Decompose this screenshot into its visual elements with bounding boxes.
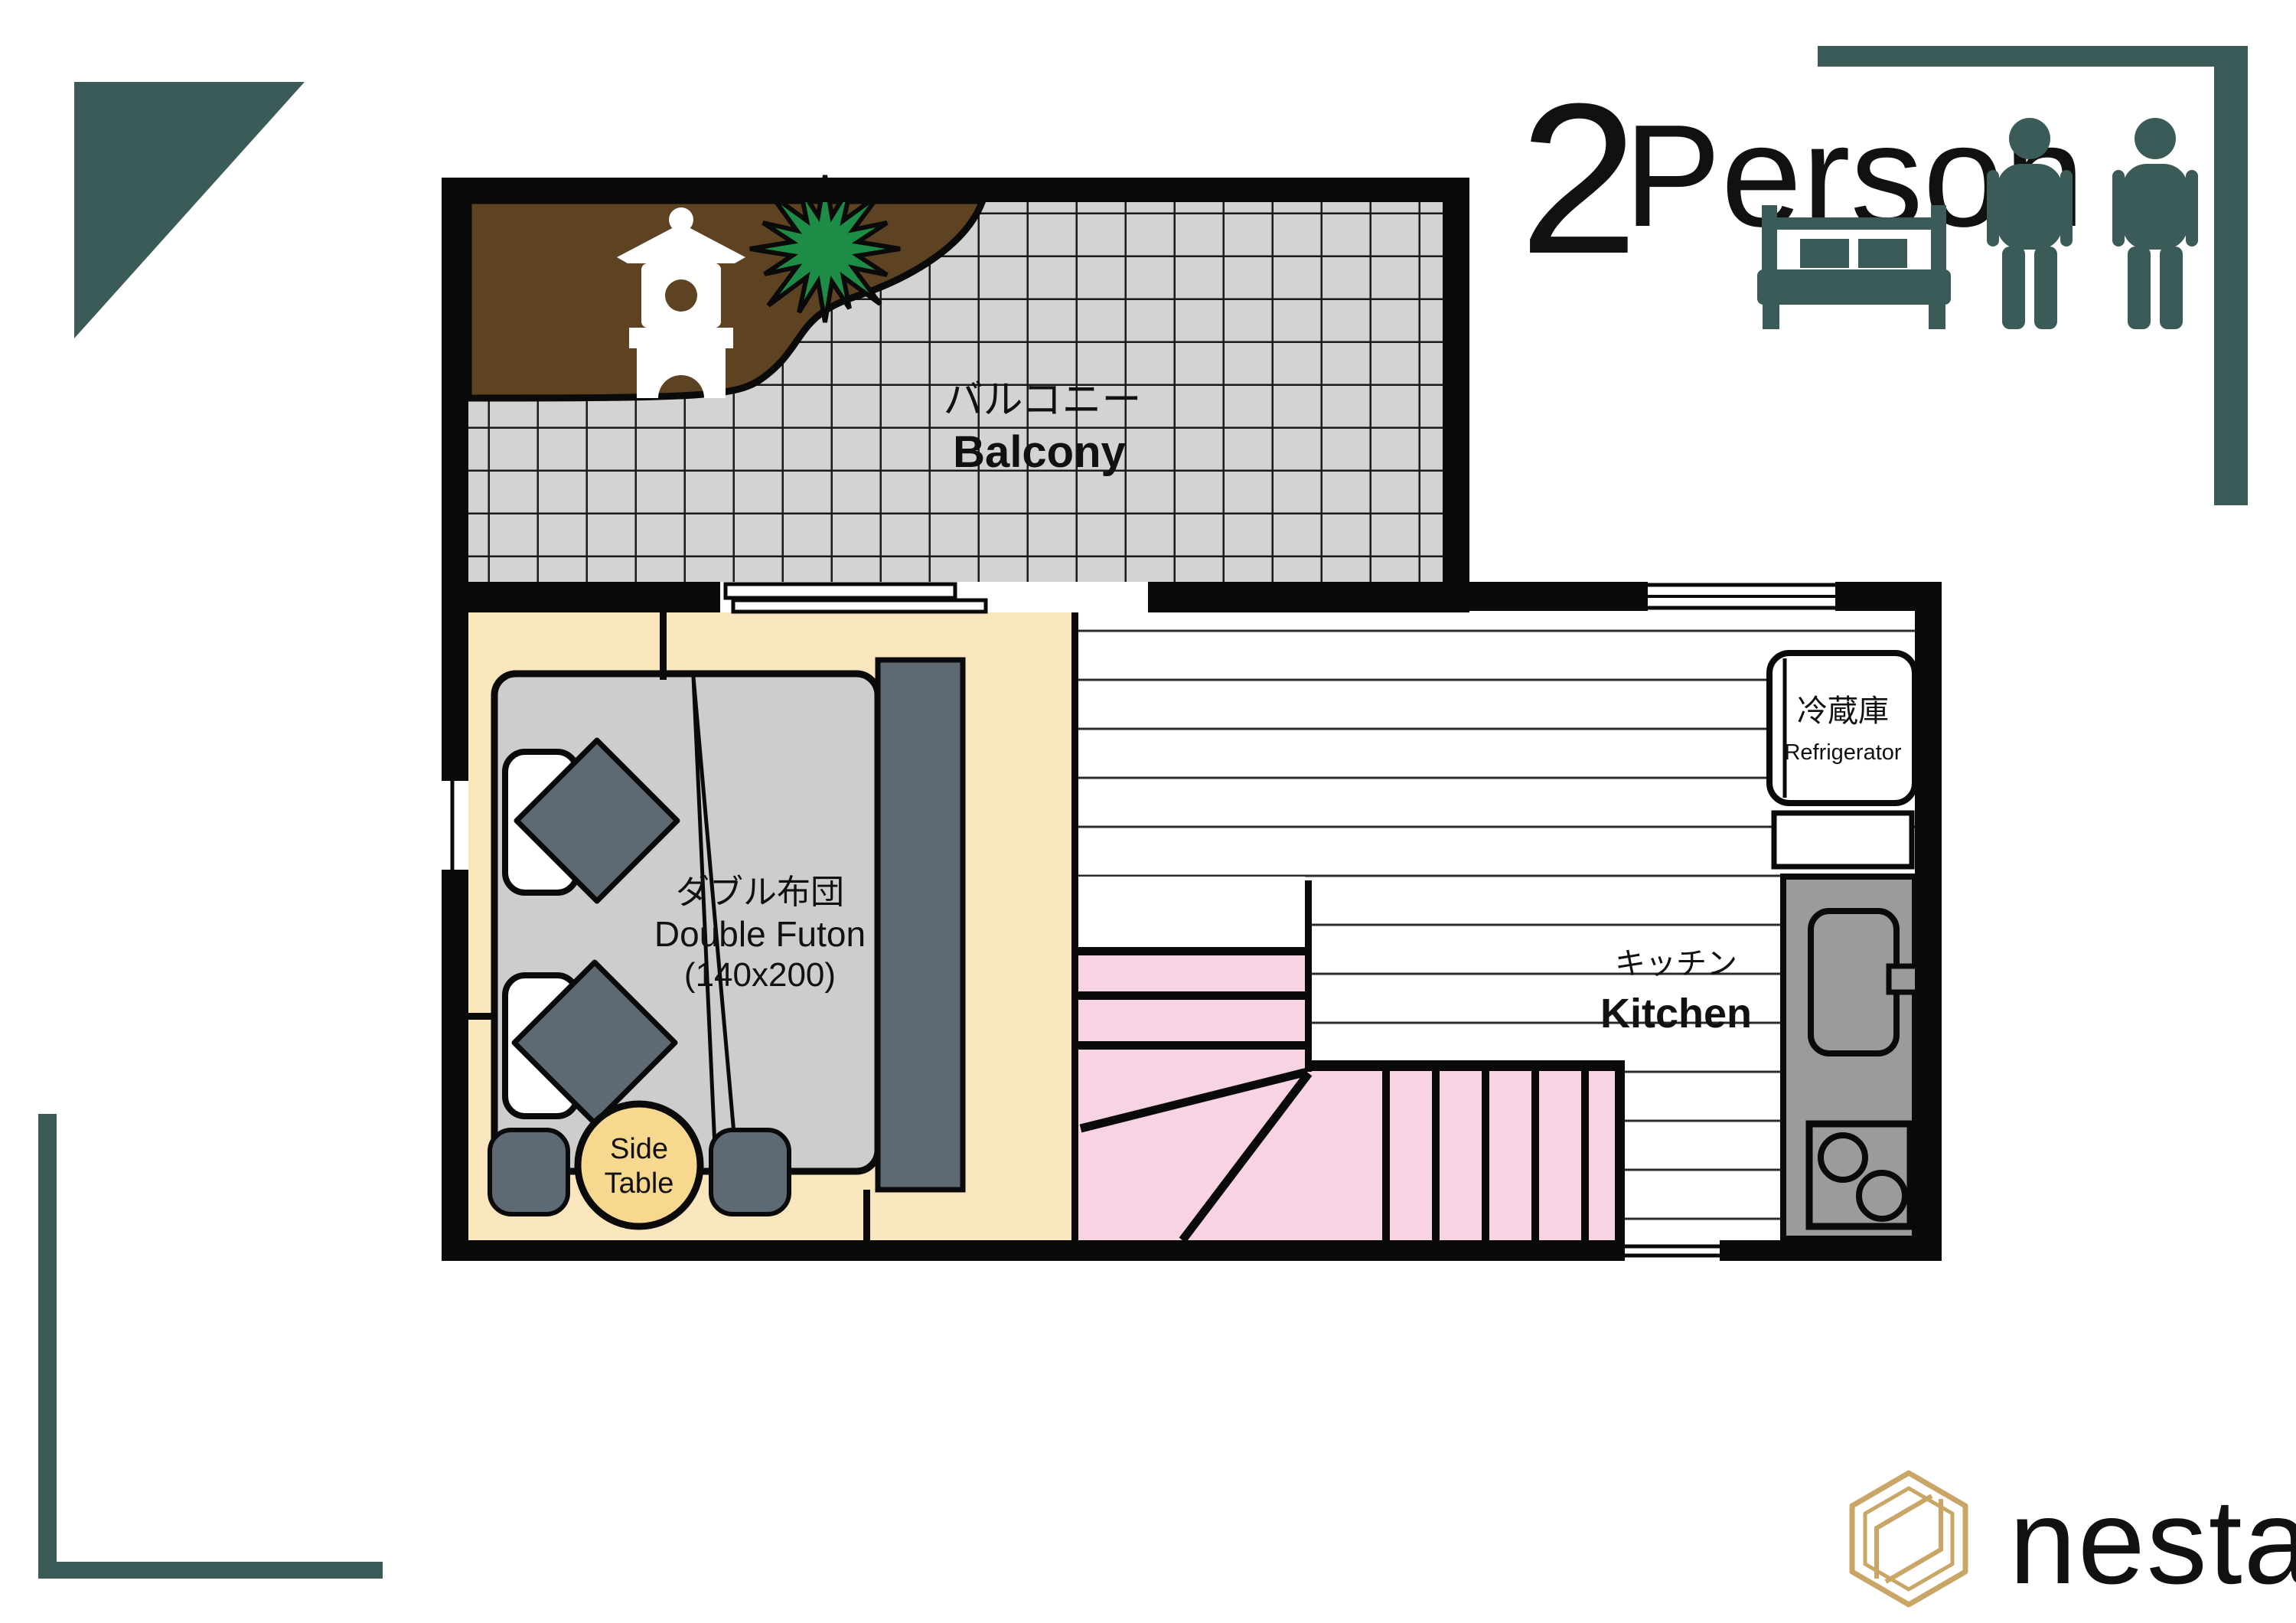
- corner-bracket-bottom-left: [38, 1114, 383, 1579]
- side-table-label-1: Side: [610, 1133, 668, 1165]
- corner-triangle: [74, 82, 305, 338]
- floor-cushion: [711, 1130, 789, 1214]
- kitchen-label-en: Kitchen: [1600, 991, 1752, 1037]
- sink: [1811, 911, 1896, 1053]
- window: [1648, 582, 1835, 611]
- bed-icon: [1757, 205, 1951, 329]
- refrigerator: [1769, 653, 1915, 803]
- futon-label-en: Double Futon: [654, 914, 866, 954]
- balcony-label-ja: バルコニー: [944, 378, 1142, 423]
- floor-cushion: [490, 1130, 568, 1214]
- balcony-label-en: Balcony: [953, 427, 1126, 477]
- counter-cabinet: [1774, 813, 1912, 867]
- stairs-landing-void: [1078, 877, 1305, 947]
- closet-divider-stub: [660, 609, 667, 680]
- futon-size-label: (140x200): [684, 956, 836, 994]
- person-icon: [2112, 118, 2198, 329]
- entrance-door: [1625, 1240, 1720, 1261]
- brand-name: nestay: [2009, 1474, 2296, 1609]
- capacity-header: 2 Person: [1519, 60, 2198, 329]
- burner: [1821, 1135, 1865, 1180]
- burner: [1859, 1173, 1905, 1219]
- kitchen-counter: [1783, 877, 1924, 1239]
- capacity-number: 2: [1519, 60, 1639, 299]
- tatami-line: [468, 1013, 497, 1020]
- window: [442, 781, 468, 870]
- futon-label-ja: ダブル布団: [676, 874, 844, 911]
- partition-line: [863, 1190, 870, 1243]
- folded-duvet: [878, 660, 963, 1190]
- refrigerator-label-ja: 冷蔵庫: [1797, 694, 1889, 728]
- refrigerator-label-en: Refrigerator: [1784, 740, 1901, 765]
- side-table-label-2: Table: [605, 1167, 674, 1200]
- kitchen-label-ja: キッチン: [1615, 947, 1737, 981]
- floorplan-canvas: バルコニー Balcony ダブル布団 Double Futon (140x20…: [0, 0, 2296, 1623]
- brand-logo-icon: [1852, 1473, 1965, 1605]
- sliding-door: [720, 582, 1148, 612]
